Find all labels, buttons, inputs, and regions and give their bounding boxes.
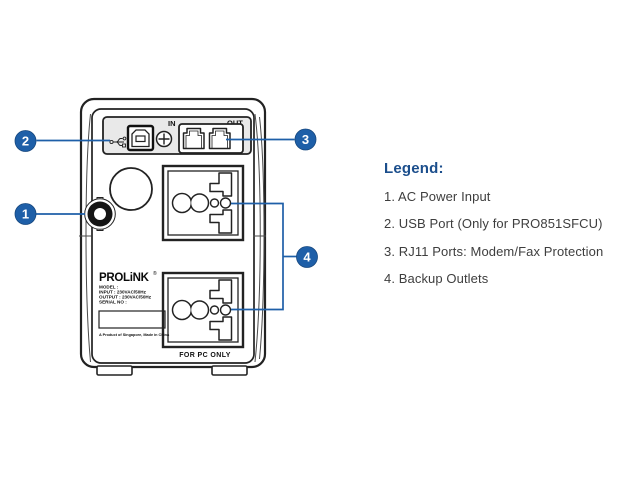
rj11-jack-in xyxy=(184,129,205,149)
callout-2-number: 2 xyxy=(22,134,29,149)
device-foot-left xyxy=(97,366,132,375)
callout-4-number: 4 xyxy=(303,250,311,265)
legend: Legend: 1. AC Power Input 2. USB Port (O… xyxy=(384,160,636,299)
ac-power-input xyxy=(85,198,116,231)
legend-heading: Legend: xyxy=(384,160,636,177)
legend-item-4: 4. Backup Outlets xyxy=(384,272,636,286)
brand-label: PROLiNK xyxy=(99,272,150,284)
for-pc-only-label: FOR PC ONLY xyxy=(179,352,231,359)
rj11-ports xyxy=(179,124,243,153)
circuit-breaker-circle xyxy=(110,168,152,210)
legend-item-1: 1. AC Power Input xyxy=(384,190,636,204)
ups-rear-panel-figure: IN OUT PROLiNK ® MODEL : INPUT : 230VAC/… xyxy=(0,0,640,480)
origin-note: A Product of Singapore, Made in China xyxy=(99,333,170,337)
usb-b-port xyxy=(128,126,153,150)
callout-1-number: 1 xyxy=(22,207,29,222)
callout-3-number: 3 xyxy=(302,132,309,147)
legend-item-2: 2. USB Port (Only for PRO851SFCU) xyxy=(384,217,636,231)
screw-icon xyxy=(157,132,172,147)
in-label: IN xyxy=(168,119,176,128)
legend-item-3: 3. RJ11 Ports: Modem/Fax Protection xyxy=(384,245,636,259)
brand-registered-mark: ® xyxy=(153,270,157,277)
device-foot-right xyxy=(212,366,247,375)
rj11-jack-out xyxy=(210,129,231,149)
spec-line-serial: SERIAL NO : xyxy=(99,300,127,305)
